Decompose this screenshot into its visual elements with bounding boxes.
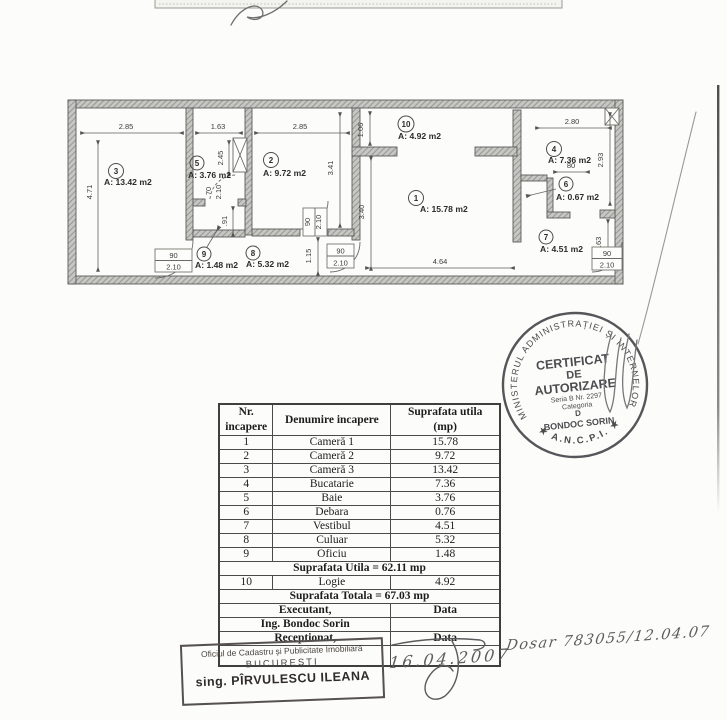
table-row: 3Cameră 313.42 — [219, 464, 500, 478]
room-label: 1 A: 15.78 m2 — [409, 191, 468, 215]
svg-text:8: 8 — [251, 249, 256, 258]
door-size-label: 2.10 — [314, 215, 323, 230]
room-label: 8 A: 5.32 m2 — [246, 246, 289, 269]
room-label: 6 A: 0.67 m2 — [556, 177, 599, 202]
door-size-label: 90 — [169, 251, 177, 260]
summary-utila-row: Suprafata Utila = 62.11 mp — [219, 562, 500, 576]
dimension-label: .91 — [220, 216, 229, 226]
dimension-label: 2.80 — [565, 117, 580, 126]
dimension-label: 1.15 — [304, 249, 313, 264]
dimension-label: 2.85 — [119, 122, 134, 131]
dimension-label: 1.06 — [356, 123, 365, 138]
summary-totala-row: Suprafata Totala = 67.03 mp — [219, 590, 500, 604]
svg-text:A: 13.42 m2: A: 13.42 m2 — [104, 177, 152, 187]
table-row: 9Oficiu1.48 — [219, 548, 500, 562]
table-row: 1Cameră 115.78 — [219, 436, 500, 450]
door-size-label: 2.10 — [333, 259, 348, 268]
table-row: 8Culuar5.32 — [219, 534, 500, 548]
svg-text:7: 7 — [544, 233, 549, 242]
table-row: 7Vestibul4.51 — [219, 520, 500, 534]
shaft-box — [233, 138, 247, 172]
svg-text:A: 3.76 m2: A: 3.76 m2 — [188, 170, 231, 180]
executant-row: Executant, Data — [219, 604, 500, 618]
svg-text:6: 6 — [564, 180, 569, 189]
svg-text:A: 7.36 m2: A: 7.36 m2 — [548, 155, 591, 165]
room-label: 10 A: 4.92 m2 — [398, 116, 441, 141]
header-nr: Nr.incapere — [219, 404, 273, 436]
svg-text:A: 4.92 m2: A: 4.92 m2 — [398, 131, 441, 141]
svg-text:A: 4.51 m2: A: 4.51 m2 — [540, 244, 583, 254]
header-suprafata: Suprafata utila(mp) — [391, 404, 500, 436]
door-size-label: 90 — [336, 247, 344, 256]
header-denumire: Denumire incapere — [273, 404, 391, 436]
svg-text:A: 1.48 m2: A: 1.48 m2 — [195, 260, 238, 270]
dimension-label: 4.64 — [433, 257, 448, 266]
dimension-label: 2.93 — [596, 153, 605, 168]
area-table: Nr.incapere Denumire incapere Suprafata … — [218, 403, 501, 667]
table-row: 6Debara0.76 — [219, 506, 500, 520]
dimension-label: 4.71 — [85, 185, 94, 200]
cadastre-office-stamp: Oficiul de Cadastru și Publicitate Imobi… — [180, 637, 385, 706]
window-icon — [605, 108, 619, 125]
door-size-label: 2.10 — [600, 261, 615, 270]
svg-text:3: 3 — [114, 167, 119, 176]
scan-edge-artifact — [717, 85, 719, 513]
room-label: 4 A: 7.36 m2 — [547, 142, 592, 166]
executant-name-row: Ing. Bondoc Sorin — [219, 618, 500, 632]
dimension-label: 3.41 — [326, 161, 335, 176]
svg-text:10: 10 — [402, 120, 411, 129]
svg-text:A: 15.78 m2: A: 15.78 m2 — [420, 204, 468, 214]
scanned-cadastral-document: 2.85 1.63 2.85 2.80 4.71 1.06 2.45 70 2.… — [0, 0, 727, 720]
executant-name: Ing. Bondoc Sorin — [219, 618, 391, 632]
svg-text:A: 5.32 m2: A: 5.32 m2 — [246, 259, 289, 269]
area-table-body: 1Cameră 115.782Cameră 29.723Cameră 313.4… — [219, 436, 500, 562]
dimension-label: 2.85 — [293, 122, 308, 131]
table-row: 2Cameră 29.72 — [219, 450, 500, 464]
table-row: 4Bucatarie7.36 — [219, 478, 500, 492]
door-size-label: 2.10 — [166, 263, 181, 272]
table-row-logie: 10 Logie 4.92 — [219, 576, 500, 590]
dimension-label: 1.63 — [211, 122, 226, 131]
door-size-label: 90 — [603, 249, 611, 258]
svg-text:2: 2 — [269, 156, 274, 165]
svg-text:1: 1 — [414, 194, 419, 203]
dimension-label: 3.40 — [357, 205, 366, 220]
room-label: 7 A: 4.51 m2 — [539, 230, 583, 254]
svg-text:A: 9.72 m2: A: 9.72 m2 — [263, 168, 306, 178]
room-label: 9 A: 1.48 m2 — [195, 247, 238, 270]
svg-text:9: 9 — [202, 250, 207, 259]
top-cut-table — [155, 0, 562, 25]
table-header-row: Nr.incapere Denumire incapere Suprafata … — [219, 404, 500, 436]
door-size-label: 90 — [303, 218, 312, 226]
svg-text:A: 0.67 m2: A: 0.67 m2 — [556, 192, 599, 202]
dimension-label: 2.45 — [216, 151, 225, 166]
dimension-label: 70 — [204, 187, 213, 195]
dimension-label: 2.10 — [214, 185, 223, 200]
room-label: 3 A: 13.42 m2 — [104, 164, 152, 188]
svg-text:4: 4 — [552, 145, 557, 154]
room-label: 2 A: 9.72 m2 — [263, 153, 306, 179]
table-row: 5Baie3.76 — [219, 492, 500, 506]
handwritten-file-number: Dosar 783055/12.04.07 — [505, 624, 711, 654]
svg-text:5: 5 — [195, 159, 200, 168]
